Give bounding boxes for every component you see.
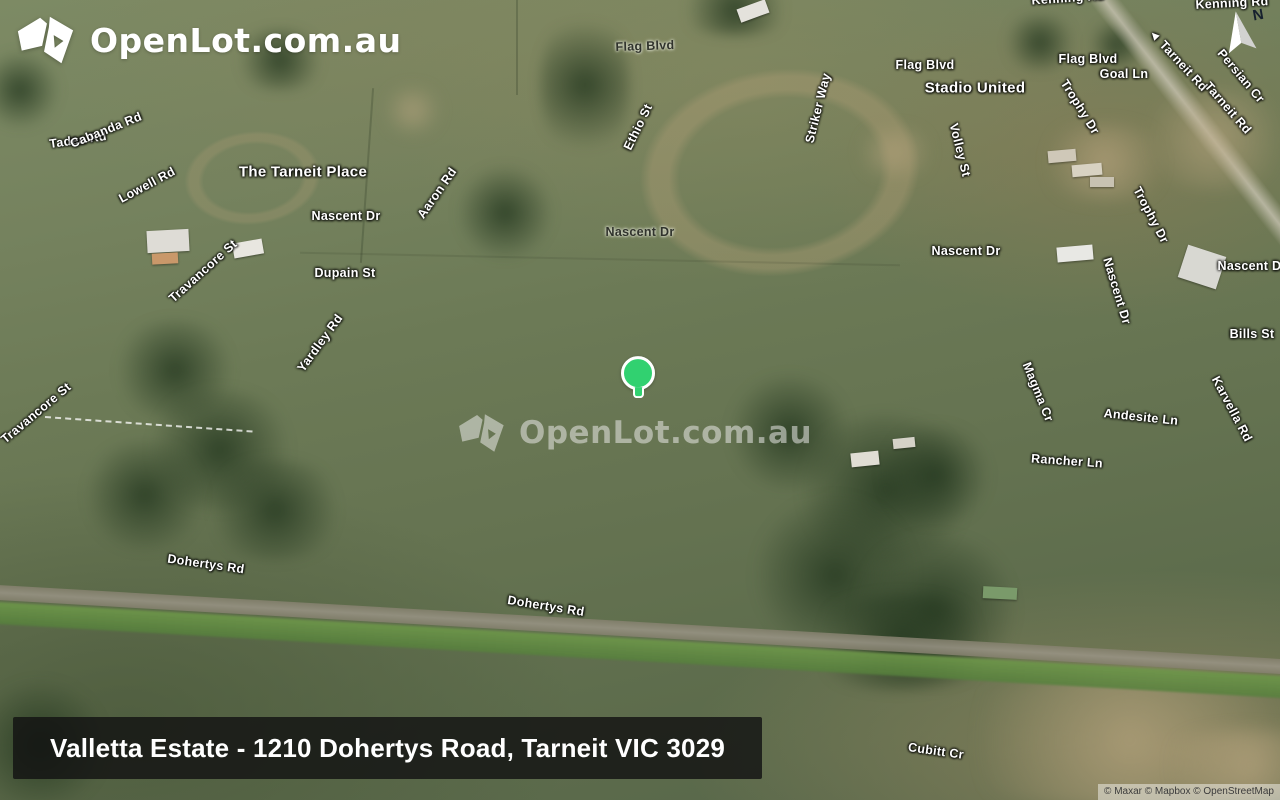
map-label: Flag Blvd [1059,52,1118,66]
tree-cluster [670,0,800,35]
tree-cluster [455,165,555,260]
building [1048,149,1077,163]
map-label: Flag Blvd [896,58,955,72]
marker-stem [633,387,644,398]
map-label: Stadio United [925,80,1026,97]
building [146,229,189,253]
compass-north-label: N [1251,6,1265,25]
openlot-logo-icon [14,14,76,66]
building [1056,244,1093,262]
attribution-text: © Maxar © Mapbox © OpenStreetMap [1104,786,1274,797]
map-label: Nascent Dr [1218,259,1280,273]
map-label: Nascent Dr [606,225,675,239]
logo-text: OpenLot.com.au [90,21,401,60]
dirt-patch [380,88,445,133]
compass[interactable]: N [1215,2,1276,68]
map-label: The Tarneit Place [239,164,367,181]
property-caption-bar: Valletta Estate - 1210 Dohertys Road, Ta… [13,717,762,779]
fence-line [516,0,518,95]
building [1090,177,1114,187]
map-label: Bills St [1230,327,1275,341]
map-label: Flag Blvd [615,38,674,54]
building [983,586,1018,600]
map-attribution[interactable]: © Maxar © Mapbox © OpenStreetMap [1098,784,1280,800]
property-marker-pin[interactable] [621,356,655,398]
map-label: Nascent Dr [932,244,1001,258]
building [850,451,879,468]
north-arrow-icon [1222,9,1257,53]
property-caption-text: Valletta Estate - 1210 Dohertys Road, Ta… [50,733,725,764]
openlot-logo[interactable]: OpenLot.com.au [14,14,401,66]
tree-cluster [80,440,210,550]
map-screenshot: Kenning RdKenning RdFlag BlvdFlag BlvdFl… [0,0,1280,800]
marker-head [621,356,655,390]
map-label: Nascent Dr [312,209,381,223]
building [152,252,179,264]
map-label: Goal Ln [1100,67,1149,81]
tree-cluster [200,460,350,560]
map-label: Dupain St [314,266,375,280]
